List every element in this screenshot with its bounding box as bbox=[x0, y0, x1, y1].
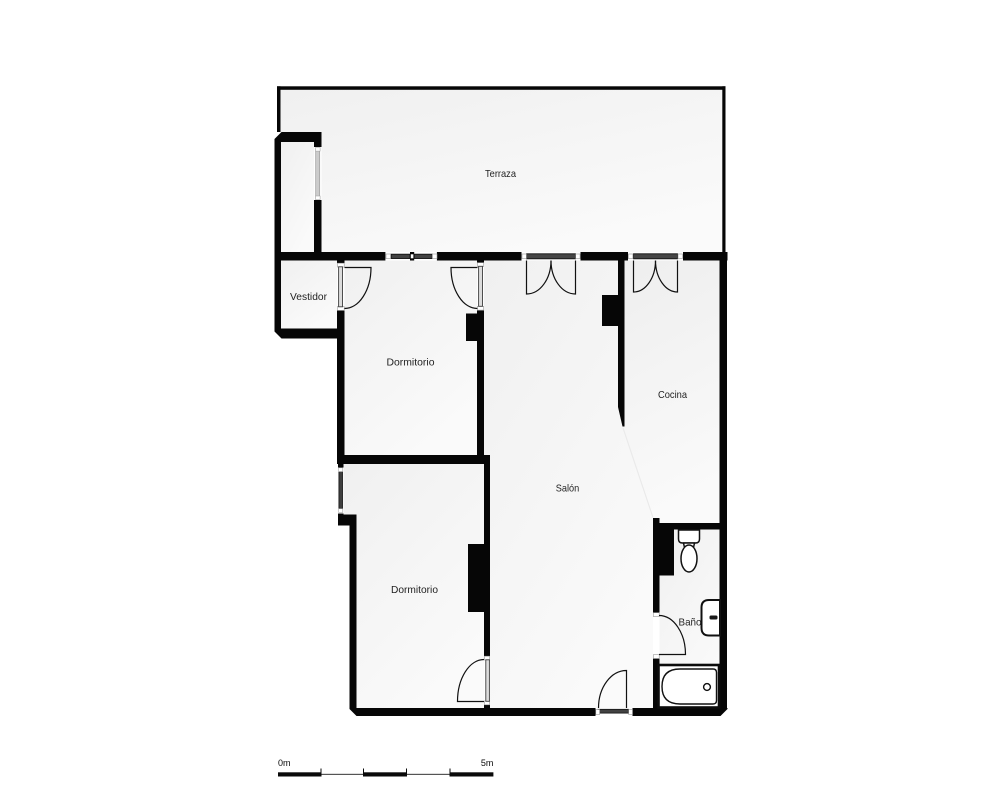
svg-text:Vestidor: Vestidor bbox=[290, 291, 327, 303]
svg-text:Cocina: Cocina bbox=[658, 389, 687, 401]
svg-text:0m: 0m bbox=[278, 758, 291, 768]
svg-text:5m: 5m bbox=[481, 758, 494, 768]
svg-text:Baño: Baño bbox=[679, 617, 702, 629]
svg-text:Dormitorio: Dormitorio bbox=[391, 584, 438, 596]
svg-text:Dormitorio: Dormitorio bbox=[387, 357, 435, 369]
svg-text:Salón: Salón bbox=[556, 483, 580, 495]
svg-text:Terraza: Terraza bbox=[485, 168, 516, 180]
